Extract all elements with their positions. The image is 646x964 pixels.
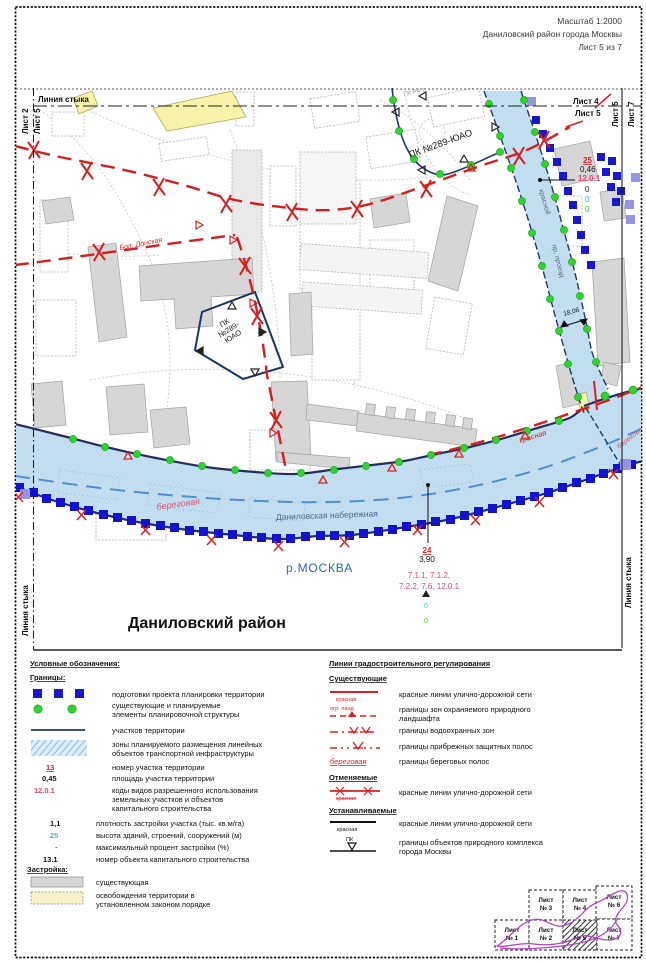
svg-text:Отменяемые: Отменяемые xyxy=(329,773,377,782)
svg-text:0: 0 xyxy=(585,205,590,214)
svg-text:13.1: 13.1 xyxy=(43,855,58,864)
svg-text:Застройка:: Застройка: xyxy=(27,865,68,874)
svg-text:Лист: Лист xyxy=(539,897,554,904)
svg-text:высота зданий, строений, соору: высота зданий, строений, сооружений (м) xyxy=(96,831,242,840)
svg-text:Даниловский район города Москв: Даниловский район города Москвы xyxy=(483,29,622,39)
svg-text:красная: красная xyxy=(336,796,356,802)
svg-text:Линия стыка: Линия стыка xyxy=(38,95,89,104)
svg-text:города Москвы: города Москвы xyxy=(399,847,451,856)
svg-text:красные линии улично-дорожной: красные линии улично-дорожной сети xyxy=(399,690,532,699)
svg-text:Лист 5: Лист 5 xyxy=(575,109,601,118)
svg-text:Лист: Лист xyxy=(539,927,554,934)
svg-text:Линии градостроительного регул: Линии градостроительного регулирования xyxy=(329,659,490,668)
svg-text:коды видов разрешенного исполь: коды видов разрешенного использования xyxy=(112,786,258,795)
svg-text:№ 3: № 3 xyxy=(540,905,553,912)
svg-text:установленном законом порядке: установленном законом порядке xyxy=(96,900,210,909)
svg-text:площадь участка территории: площадь участка территории xyxy=(112,774,214,783)
svg-text:границы прибрежных защитных по: границы прибрежных защитных полос xyxy=(399,742,533,751)
svg-text:номер объекта капитального стр: номер объекта капитального строительства xyxy=(96,855,250,864)
svg-text:ПК: ПК xyxy=(346,837,354,843)
svg-text:Линия стыка: Линия стыка xyxy=(624,557,633,608)
svg-text:0,45: 0,45 xyxy=(42,774,57,783)
svg-text:береговая: береговая xyxy=(330,757,366,766)
svg-text:0: 0 xyxy=(585,185,590,194)
svg-text:Лист: Лист xyxy=(573,897,588,904)
svg-text:плотность застройки участка (т: плотность застройки участка (тыс. кв.м/г… xyxy=(96,819,245,828)
svg-text:Лист 5: Лист 5 xyxy=(611,101,620,127)
svg-text:ландшафта: ландшафта xyxy=(399,714,441,723)
svg-text:номер участка территории: номер участка территории xyxy=(112,763,205,772)
svg-text:Даниловский район: Даниловский район xyxy=(128,615,286,632)
svg-text:максимальный процент застройки: максимальный процент застройки (%) xyxy=(96,843,230,852)
svg-text:красные линии улично-дорожной: красные линии улично-дорожной сети xyxy=(399,819,532,828)
svg-text:границы береговых полос: границы береговых полос xyxy=(399,757,490,766)
svg-text:Лист 5 из 7: Лист 5 из 7 xyxy=(578,42,622,52)
svg-text:элементы планировочной структу: элементы планировочной структуры xyxy=(112,710,239,719)
svg-text:Линия стыка: Линия стыка xyxy=(21,585,30,636)
svg-text:0,46: 0,46 xyxy=(580,165,596,174)
svg-text:подготовки проекта планировки: подготовки проекта планировки территории xyxy=(112,690,265,699)
svg-text:7.2.2, 7.6, 12.0.1: 7.2.2, 7.6, 12.0.1 xyxy=(399,582,460,591)
svg-text:12.0.1: 12.0.1 xyxy=(578,174,601,183)
svg-text:объектов транспортной инфрастр: объектов транспортной инфраструктуры xyxy=(112,749,254,758)
svg-text:существующая: существующая xyxy=(96,878,149,887)
svg-text:Масштаб 1:2000: Масштаб 1:2000 xyxy=(557,16,622,26)
svg-text:Существующие: Существующие xyxy=(329,674,387,683)
svg-text:границы зон охраняемого природ: границы зон охраняемого природного xyxy=(399,705,531,714)
svg-text:Условные обозначения:: Условные обозначения: xyxy=(30,659,120,668)
svg-text:красная: красная xyxy=(337,827,357,833)
svg-text:25: 25 xyxy=(50,831,58,840)
svg-text:существующие и планируемые: существующие и планируемые xyxy=(112,701,221,710)
svg-text:№ 1: № 1 xyxy=(506,935,519,942)
svg-text:Лист 5: Лист 5 xyxy=(33,108,42,134)
svg-text:25: 25 xyxy=(583,156,592,165)
svg-text:№ 2: № 2 xyxy=(540,935,553,942)
svg-text:24: 24 xyxy=(423,546,432,555)
svg-text:капитального строительства: капитального строительства xyxy=(112,804,212,813)
svg-text:зоны планируемого размещения л: зоны планируемого размещения линейных xyxy=(112,740,263,749)
svg-text:красные линии улично-дорожной: красные линии улично-дорожной сети xyxy=(399,788,532,797)
svg-text:Устанавливаемые: Устанавливаемые xyxy=(329,806,397,815)
svg-text:3,90: 3,90 xyxy=(419,555,435,564)
svg-text:№ 6: № 6 xyxy=(608,902,621,909)
svg-text:участков территории: участков территории xyxy=(112,726,185,735)
svg-text:7.1.1, 7.1.2,: 7.1.1, 7.1.2, xyxy=(408,571,450,580)
svg-text:р.МОСКВА: р.МОСКВА xyxy=(286,561,353,575)
svg-text:0: 0 xyxy=(585,195,590,204)
svg-text:Лист 7: Лист 7 xyxy=(627,101,636,127)
svg-text:1,1: 1,1 xyxy=(50,819,60,828)
svg-text:Лист: Лист xyxy=(607,894,622,901)
svg-text:границы водоохранных зон: границы водоохранных зон xyxy=(399,726,494,735)
svg-text:Лист 2: Лист 2 xyxy=(21,108,30,134)
svg-text:красная: красная xyxy=(336,697,356,703)
svg-text:Лист 4: Лист 4 xyxy=(573,97,599,106)
svg-text:13: 13 xyxy=(46,763,54,772)
svg-text:освобождения территории в: освобождения территории в xyxy=(96,891,195,900)
svg-text:огр. ланд: огр. ланд xyxy=(330,706,354,712)
svg-text:Границы:: Границы: xyxy=(30,673,65,682)
svg-text:земельных участков и объектов: земельных участков и объектов xyxy=(112,795,223,804)
svg-text:Лист: Лист xyxy=(573,927,588,934)
svg-text:0: 0 xyxy=(424,603,428,610)
svg-text:0: 0 xyxy=(424,618,428,625)
svg-text:12.0.1: 12.0.1 xyxy=(34,786,55,795)
svg-text:границы объектов природного ко: границы объектов природного комплекса xyxy=(399,838,544,847)
